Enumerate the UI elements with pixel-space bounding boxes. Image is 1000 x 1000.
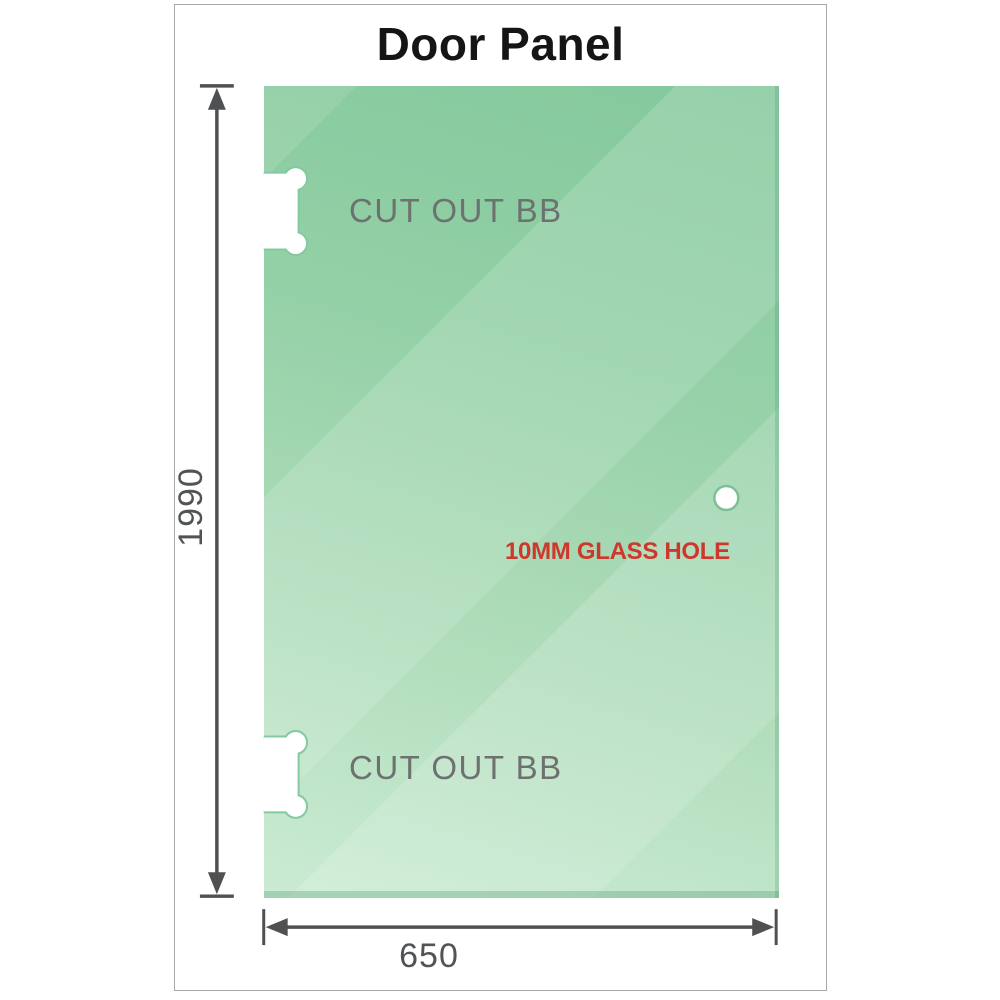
width-dimension-label: 650: [369, 937, 489, 975]
glass-hole-label: 10MM GLASS HOLE: [505, 538, 719, 566]
hinge-cutout-top-shape: [253, 168, 306, 254]
hinge-cutout-bottom-shape: [253, 732, 306, 817]
cutout-label-top: CUT OUT BB: [349, 192, 563, 230]
height-dimension-label: 1990: [171, 437, 211, 577]
screenshot-root: Door Panel: [0, 0, 1000, 1000]
cutout-label-bottom: CUT OUT BB: [349, 749, 563, 787]
annotation-layer: [175, 5, 826, 990]
horizontal-dimension-arrow: [264, 909, 776, 945]
drawing-frame: Door Panel: [174, 4, 827, 991]
glass-hole-shape: [714, 486, 738, 510]
